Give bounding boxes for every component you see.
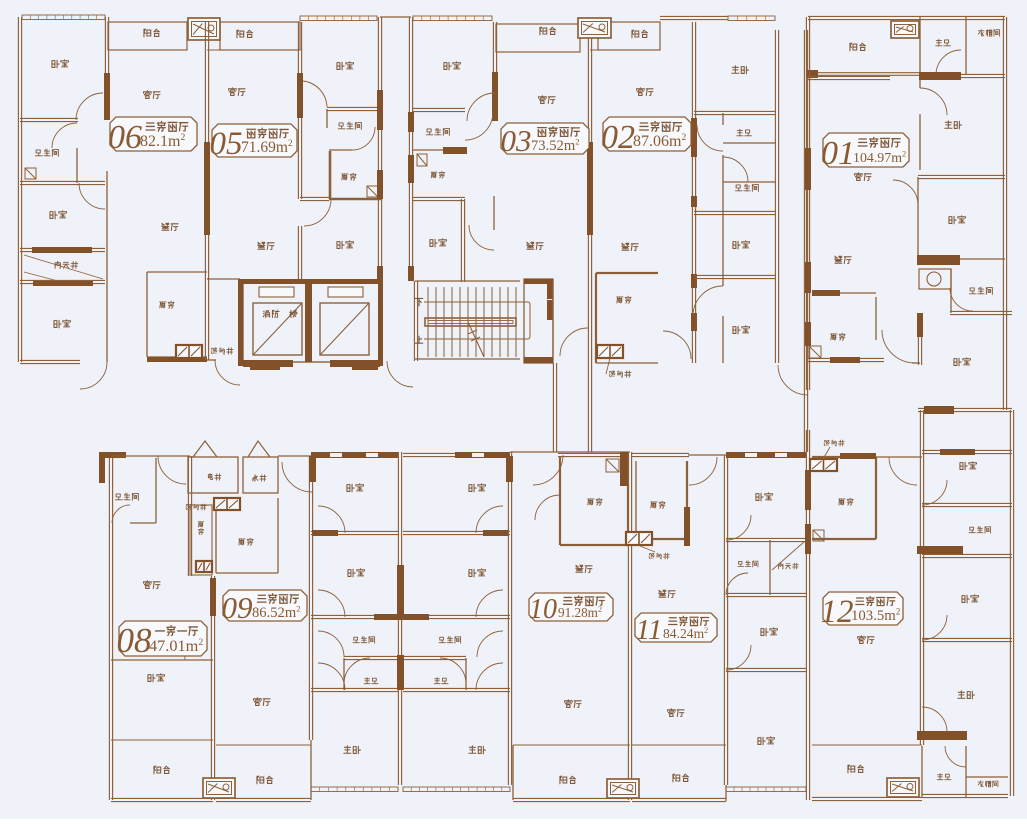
svg-text:03: 03 xyxy=(501,123,532,158)
svg-text:91.28m2: 91.28m2 xyxy=(558,605,602,620)
svg-text:104.97m2: 104.97m2 xyxy=(853,150,906,166)
svg-text:84.24m2: 84.24m2 xyxy=(663,626,708,641)
svg-text:05: 05 xyxy=(210,126,243,162)
svg-text:103.5m2: 103.5m2 xyxy=(851,606,900,624)
svg-text:08: 08 xyxy=(117,621,153,660)
svg-text:73.52m2: 73.52m2 xyxy=(531,137,580,155)
svg-text:82.1m2: 82.1m2 xyxy=(140,132,185,150)
svg-text:10: 10 xyxy=(529,594,557,625)
svg-text:11: 11 xyxy=(636,614,663,646)
svg-text:01: 01 xyxy=(821,135,855,172)
svg-text:71.69m2: 71.69m2 xyxy=(241,139,293,156)
svg-text:47.01m2: 47.01m2 xyxy=(149,636,203,655)
svg-text:09: 09 xyxy=(222,590,253,625)
svg-text:87.06m2: 87.06m2 xyxy=(633,132,686,150)
svg-text:12: 12 xyxy=(821,594,854,630)
svg-text:02: 02 xyxy=(601,119,635,156)
svg-text:86.52m2: 86.52m2 xyxy=(252,604,301,622)
svg-text:06: 06 xyxy=(108,119,142,156)
